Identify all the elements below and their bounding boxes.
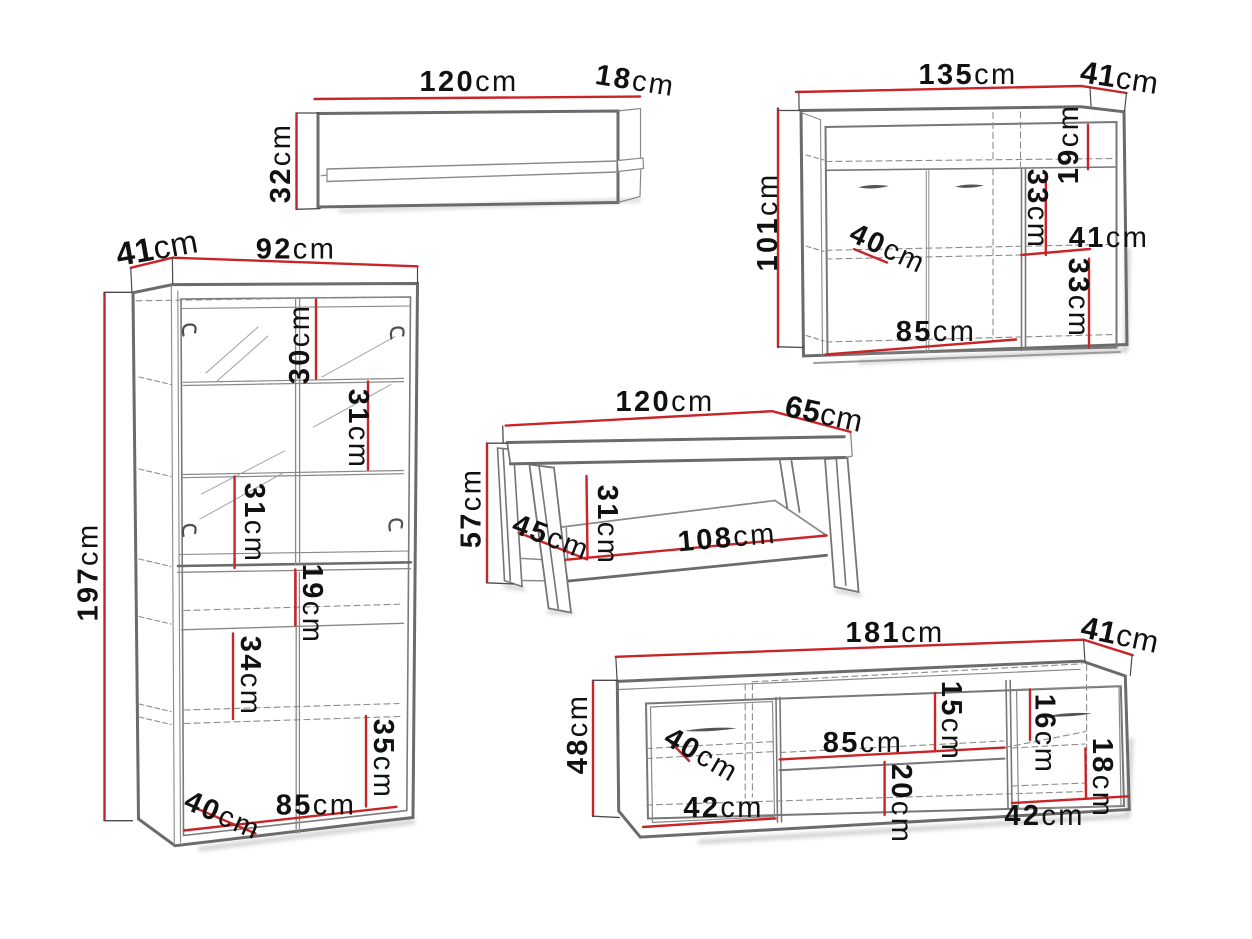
- svg-text:41cm: 41cm: [1069, 222, 1150, 254]
- svg-text:18cm: 18cm: [1086, 738, 1118, 819]
- svg-text:19cm: 19cm: [1053, 104, 1085, 185]
- svg-text:181cm: 181cm: [845, 617, 944, 649]
- svg-text:85cm: 85cm: [823, 727, 904, 759]
- svg-text:92cm: 92cm: [256, 234, 337, 266]
- svg-text:34cm: 34cm: [234, 636, 266, 717]
- svg-text:35cm: 35cm: [367, 719, 399, 800]
- svg-text:33cm: 33cm: [1062, 258, 1094, 339]
- svg-text:120cm: 120cm: [615, 386, 714, 418]
- svg-text:48cm: 48cm: [562, 694, 594, 775]
- svg-text:15cm: 15cm: [935, 681, 967, 762]
- svg-text:16cm: 16cm: [1029, 694, 1061, 775]
- svg-text:30cm: 30cm: [284, 304, 316, 385]
- svg-text:42cm: 42cm: [683, 792, 764, 824]
- svg-text:31cm: 31cm: [591, 485, 623, 566]
- svg-text:85cm: 85cm: [896, 316, 977, 348]
- svg-text:85cm: 85cm: [276, 790, 357, 822]
- svg-text:197cm: 197cm: [73, 522, 105, 621]
- svg-text:101cm: 101cm: [752, 172, 784, 271]
- svg-text:31cm: 31cm: [342, 389, 374, 470]
- svg-text:120cm: 120cm: [419, 66, 518, 98]
- svg-text:19cm: 19cm: [296, 564, 328, 645]
- svg-text:33cm: 33cm: [1021, 169, 1053, 250]
- svg-text:20cm: 20cm: [885, 764, 917, 845]
- svg-text:42cm: 42cm: [1004, 800, 1085, 832]
- svg-text:135cm: 135cm: [918, 59, 1017, 91]
- svg-text:31cm: 31cm: [238, 483, 270, 564]
- svg-text:57cm: 57cm: [456, 468, 488, 549]
- svg-text:32cm: 32cm: [265, 123, 297, 204]
